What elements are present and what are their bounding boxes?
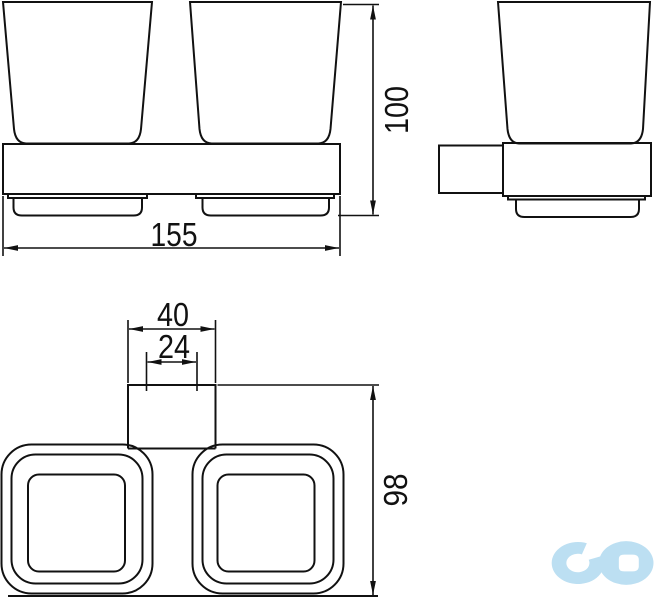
- drawing-page: 155 100 40 24 98: [0, 0, 654, 600]
- infinity-logo-left-loop: [552, 542, 605, 584]
- front-right-cup-outline: [190, 2, 341, 144]
- side-holder-ring: [503, 143, 651, 196]
- dimension-overall-width: 155: [3, 196, 340, 256]
- side-view: [439, 2, 651, 217]
- front-mounting-plate: [3, 144, 340, 194]
- dim-label-overall-height: 100: [378, 86, 415, 134]
- dimension-bracket-inner-width: 24: [147, 328, 198, 391]
- logo-watermark: [552, 541, 654, 585]
- dimensions: 155 100 40 24 98: [3, 5, 415, 596]
- dimension-overall-height: 100: [338, 5, 415, 216]
- side-cup-outline: [498, 2, 650, 144]
- side-cup-bottom: [516, 200, 639, 218]
- top-right-cup-opening: [218, 475, 315, 572]
- side-wall-bracket: [439, 146, 503, 194]
- infinity-logo-right-loop: [599, 541, 654, 585]
- top-view: [2, 385, 379, 596]
- dim-label-bracket-inner-width: 24: [158, 328, 190, 365]
- drawing-canvas: 155 100 40 24 98: [0, 0, 654, 600]
- dim-label-top-depth: 98: [377, 474, 414, 507]
- top-wall-bracket: [128, 385, 216, 449]
- top-left-cup-opening: [28, 475, 125, 572]
- front-view: [3, 2, 341, 216]
- front-right-cup-bottom: [203, 198, 330, 216]
- dim-label-overall-width: 155: [151, 216, 198, 253]
- front-left-cup-outline: [3, 2, 152, 144]
- dimension-top-depth: 98: [218, 385, 415, 595]
- front-left-cup-bottom: [14, 198, 143, 216]
